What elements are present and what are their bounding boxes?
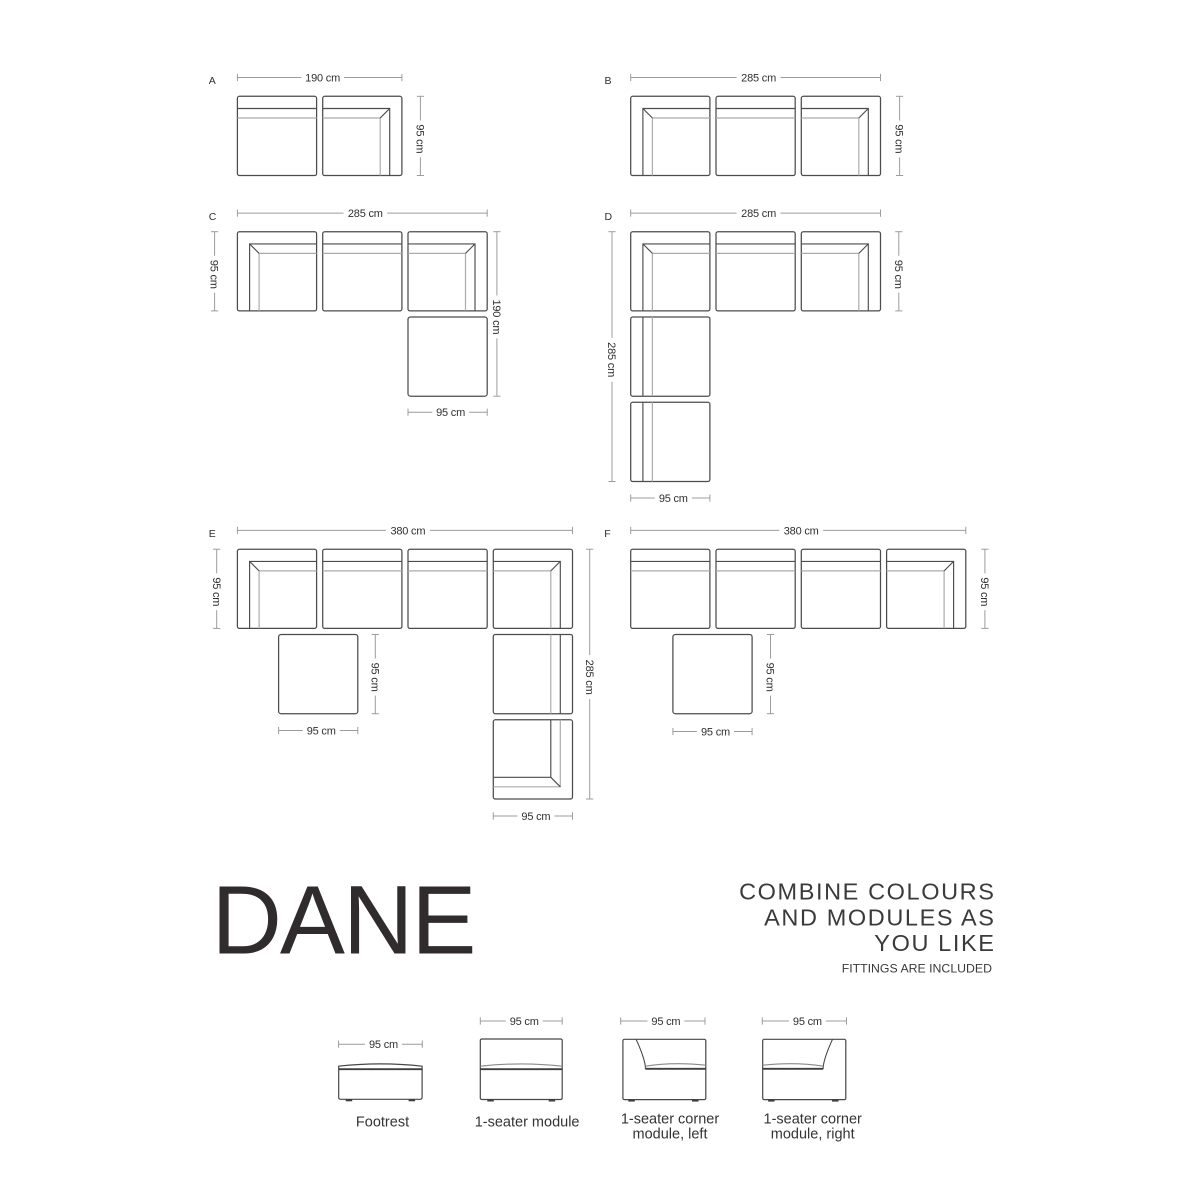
svg-text:95 cm: 95 cm: [436, 407, 465, 419]
svg-text:F: F: [604, 528, 610, 540]
svg-text:95 cm: 95 cm: [978, 577, 990, 606]
svg-text:380 cm: 380 cm: [390, 525, 425, 537]
svg-text:380 cm: 380 cm: [784, 525, 819, 537]
svg-text:95 cm: 95 cm: [368, 663, 380, 692]
svg-text:FITTINGS ARE INCLUDED: FITTINGS ARE INCLUDED: [842, 961, 992, 975]
svg-text:285 cm: 285 cm: [741, 208, 776, 220]
svg-text:285 cm: 285 cm: [348, 208, 383, 220]
svg-text:95 cm: 95 cm: [414, 124, 426, 153]
svg-text:285 cm: 285 cm: [605, 342, 617, 377]
svg-text:95 cm: 95 cm: [659, 493, 688, 505]
svg-text:95 cm: 95 cm: [793, 1016, 822, 1028]
svg-text:E: E: [209, 528, 216, 540]
svg-text:1-seater cornermodule, right: 1-seater cornermodule, right: [764, 1111, 862, 1142]
svg-text:Footrest: Footrest: [356, 1114, 409, 1130]
svg-text:285 cm: 285 cm: [583, 660, 595, 695]
svg-text:95 cm: 95 cm: [651, 1016, 680, 1028]
svg-text:95 cm: 95 cm: [521, 811, 550, 823]
svg-text:DANE: DANE: [212, 866, 475, 975]
svg-text:285 cm: 285 cm: [741, 72, 776, 84]
svg-text:D: D: [605, 211, 613, 223]
svg-text:95 cm: 95 cm: [369, 1039, 398, 1051]
svg-text:190 cm: 190 cm: [305, 72, 340, 84]
svg-text:95 cm: 95 cm: [764, 663, 776, 692]
svg-text:C: C: [209, 211, 217, 223]
svg-text:95 cm: 95 cm: [208, 260, 220, 289]
svg-text:B: B: [605, 75, 612, 87]
svg-text:A: A: [209, 75, 216, 87]
svg-text:1-seater module: 1-seater module: [475, 1114, 580, 1130]
svg-text:95 cm: 95 cm: [210, 577, 222, 606]
svg-text:95 cm: 95 cm: [892, 260, 904, 289]
svg-text:1-seater cornermodule, left: 1-seater cornermodule, left: [621, 1111, 719, 1142]
svg-text:95 cm: 95 cm: [510, 1016, 539, 1028]
svg-text:95 cm: 95 cm: [701, 726, 730, 738]
svg-text:190 cm: 190 cm: [490, 299, 502, 334]
svg-text:95 cm: 95 cm: [307, 725, 336, 737]
svg-text:95 cm: 95 cm: [893, 124, 905, 153]
